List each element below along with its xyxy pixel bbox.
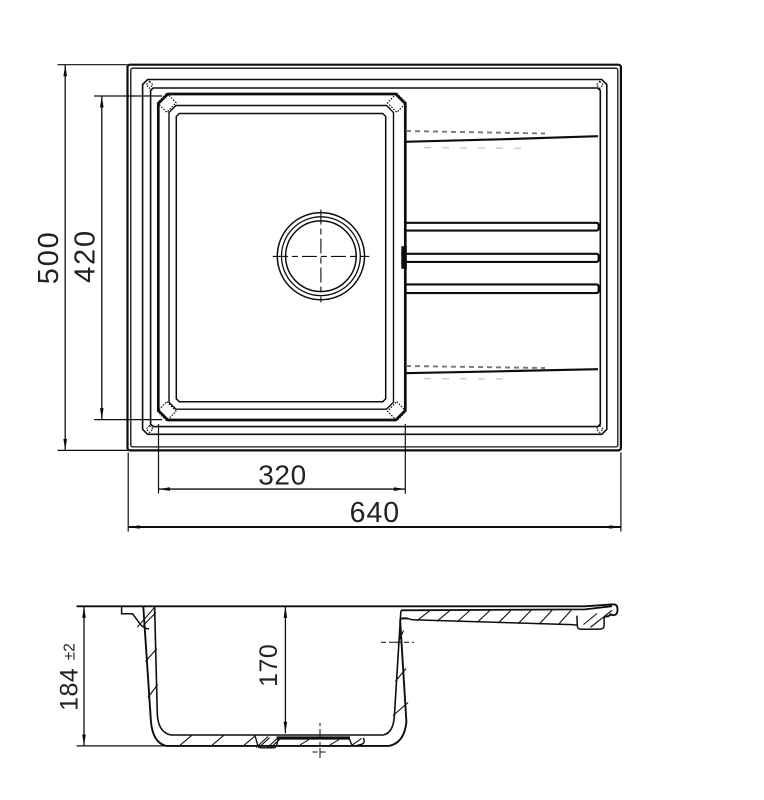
svg-text:320: 320 xyxy=(258,459,307,490)
svg-text:500: 500 xyxy=(33,230,65,284)
svg-text:420: 420 xyxy=(70,229,102,283)
svg-text:640: 640 xyxy=(350,497,401,529)
svg-text:170: 170 xyxy=(255,644,283,687)
